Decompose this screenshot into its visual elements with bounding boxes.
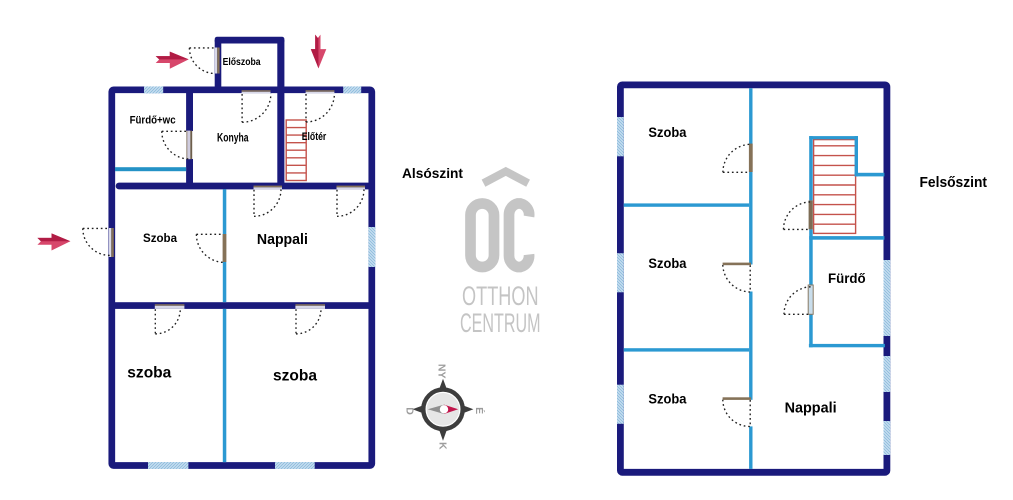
svg-text:D: D bbox=[404, 407, 416, 415]
svg-text:Szoba: Szoba bbox=[143, 231, 177, 245]
svg-text:szoba: szoba bbox=[127, 365, 171, 382]
svg-text:Fürdő+wc: Fürdő+wc bbox=[130, 114, 176, 126]
svg-text:Nappali: Nappali bbox=[257, 232, 308, 248]
svg-text:K: K bbox=[436, 442, 448, 450]
svg-text:Szoba: Szoba bbox=[648, 256, 686, 271]
svg-text:szoba: szoba bbox=[273, 368, 317, 385]
svg-text:NY: NY bbox=[435, 364, 447, 379]
svg-text:Konyha: Konyha bbox=[217, 133, 249, 145]
svg-text:Nappali: Nappali bbox=[785, 400, 837, 416]
svg-text:Előszoba: Előszoba bbox=[223, 57, 261, 68]
svg-text:CENTRUM: CENTRUM bbox=[460, 308, 541, 338]
svg-text:É: É bbox=[473, 407, 486, 414]
svg-text:Szoba: Szoba bbox=[648, 392, 686, 407]
svg-text:Alsószint: Alsószint bbox=[402, 166, 464, 181]
svg-text:Felsőszint: Felsőszint bbox=[920, 175, 988, 191]
svg-text:Előtér: Előtér bbox=[302, 131, 327, 143]
svg-text:Szoba: Szoba bbox=[648, 125, 686, 140]
svg-text:OTTHON: OTTHON bbox=[462, 281, 539, 311]
svg-text:Fürdő: Fürdő bbox=[828, 271, 866, 286]
